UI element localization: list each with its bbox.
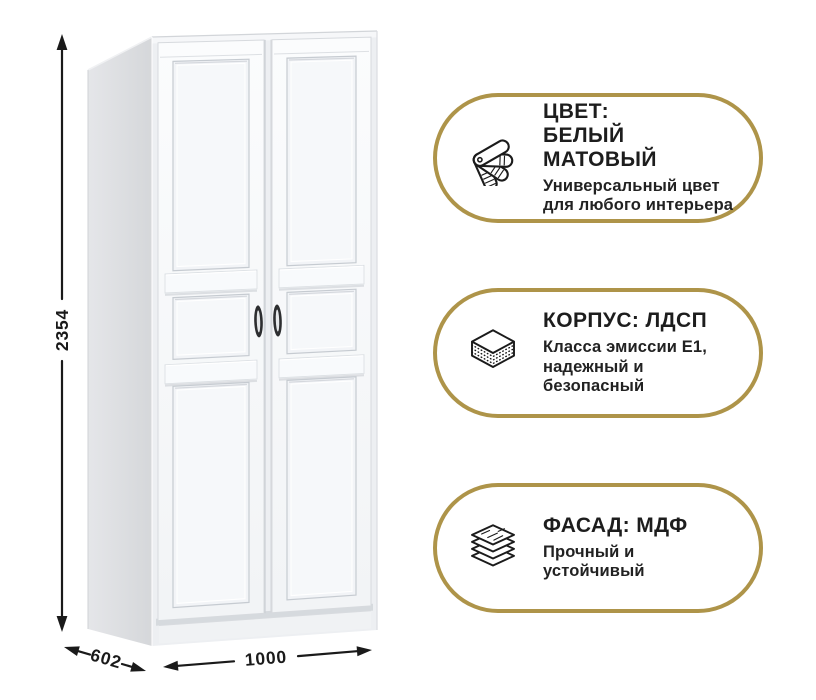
width-dimension: 1000 [163, 646, 372, 671]
height-value: 2354 [52, 309, 72, 351]
depth-value: 602 [88, 644, 124, 672]
feature-card-color: ЦВЕТ: БЕЛЫЙ МАТОВЫЙ Универсальный цвет д… [433, 93, 763, 223]
product-infographic: 2354 602 1000 [0, 0, 816, 700]
arrow-down-icon [57, 616, 68, 632]
feature-card-facade: ФАСАД: МДФ Прочный и устойчивый [433, 483, 763, 613]
feature-title: ЦВЕТ: БЕЛЫЙ МАТОВЫЙ [543, 100, 741, 172]
depth-dimension: 602 [64, 644, 146, 672]
height-dimension: 2354 [52, 34, 72, 632]
width-value: 1000 [244, 647, 288, 670]
arrow-right-icon [357, 646, 372, 656]
chipboard-layers-icon [464, 324, 522, 382]
feature-title: КОРПУС: ЛДСП [543, 309, 707, 333]
feature-subtitle: Класса эмиссии E1, надежный и безопасный [543, 338, 707, 397]
feature-card-body: КОРПУС: ЛДСП Класса эмиссии E1, надежный… [433, 288, 763, 418]
arrow-right-icon [130, 662, 146, 672]
feature-subtitle: Прочный и устойчивый [543, 543, 688, 583]
mdf-sheets-icon [464, 519, 522, 577]
wardrobe-illustration: 2354 602 1000 [0, 0, 420, 700]
feature-title: ФАСАД: МДФ [543, 514, 688, 538]
arrow-up-icon [57, 34, 68, 50]
arrow-left-icon [163, 661, 178, 671]
wardrobe-cabinet [88, 31, 377, 646]
feature-subtitle: Универсальный цвет для любого интерьера [543, 177, 741, 217]
color-swatches-fan-icon [464, 129, 522, 187]
arrow-left-icon [64, 646, 80, 656]
